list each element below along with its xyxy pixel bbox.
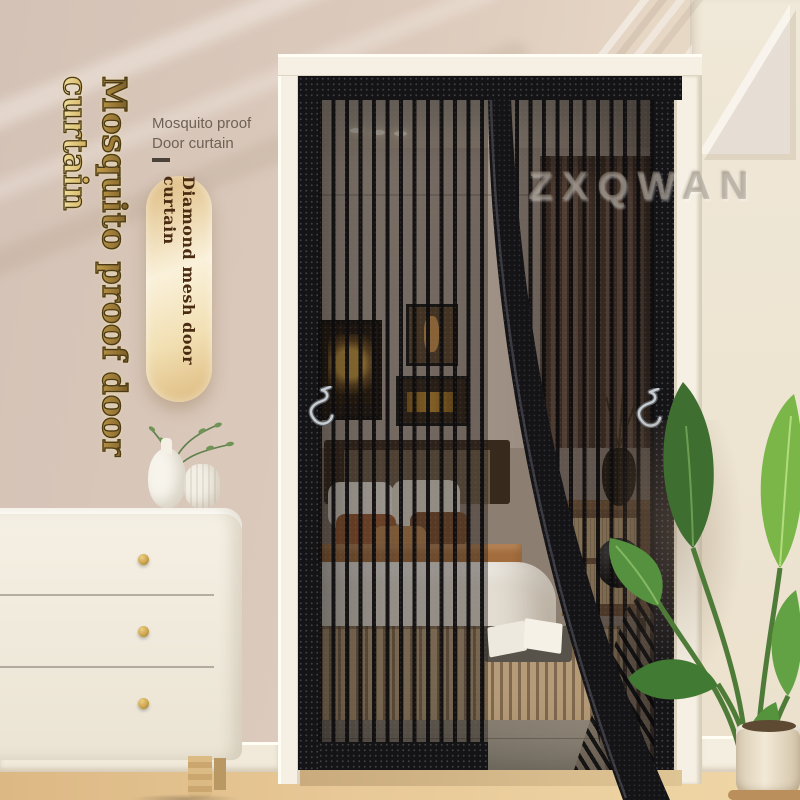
dresser-body (0, 508, 242, 760)
feature-badge: Diamond mesh door curtain (146, 176, 212, 402)
decor-vases (140, 416, 260, 512)
curtain-border-bottom (318, 742, 488, 770)
dresser-leg (214, 758, 226, 790)
plant-pot (736, 724, 800, 796)
drawer-divider (0, 666, 214, 668)
open-book-left-page (487, 620, 527, 657)
pot-saucer (728, 790, 800, 800)
subtitle-line1: Mosquito proof (152, 114, 251, 134)
curtain-border-left (298, 100, 318, 770)
floor-tray (484, 626, 572, 662)
logo-slash-icon (610, 0, 667, 62)
door-frame-top (278, 54, 702, 78)
subtitle-underline (152, 158, 170, 162)
drawer-divider (0, 594, 214, 596)
drawer-knob (138, 698, 149, 709)
feature-badge-label: Diamond mesh door curtain (160, 176, 198, 402)
product-photo: Mosquito proof door curtain Mosquito pro… (0, 0, 800, 800)
pot-soil (742, 720, 796, 732)
mesh-curtain-left-panel (318, 100, 488, 742)
logo-slash-icon (592, 0, 649, 62)
dresser-leg (188, 756, 212, 798)
white-vase (184, 464, 220, 508)
dresser (0, 508, 248, 800)
logo-slash-icon (628, 0, 685, 62)
open-book-right-page (523, 618, 562, 654)
vertical-product-title: Mosquito proof door curtain (56, 76, 134, 468)
product-subtitle: Mosquito proof Door curtain (152, 114, 251, 162)
subtitle-line2: Door curtain (152, 134, 251, 154)
drawer-knob (138, 554, 149, 565)
drawer-knob (138, 626, 149, 637)
white-vase (148, 448, 186, 508)
door-frame-left (278, 76, 300, 784)
curtain-border-top (298, 76, 682, 100)
floor-shadow (130, 794, 240, 800)
